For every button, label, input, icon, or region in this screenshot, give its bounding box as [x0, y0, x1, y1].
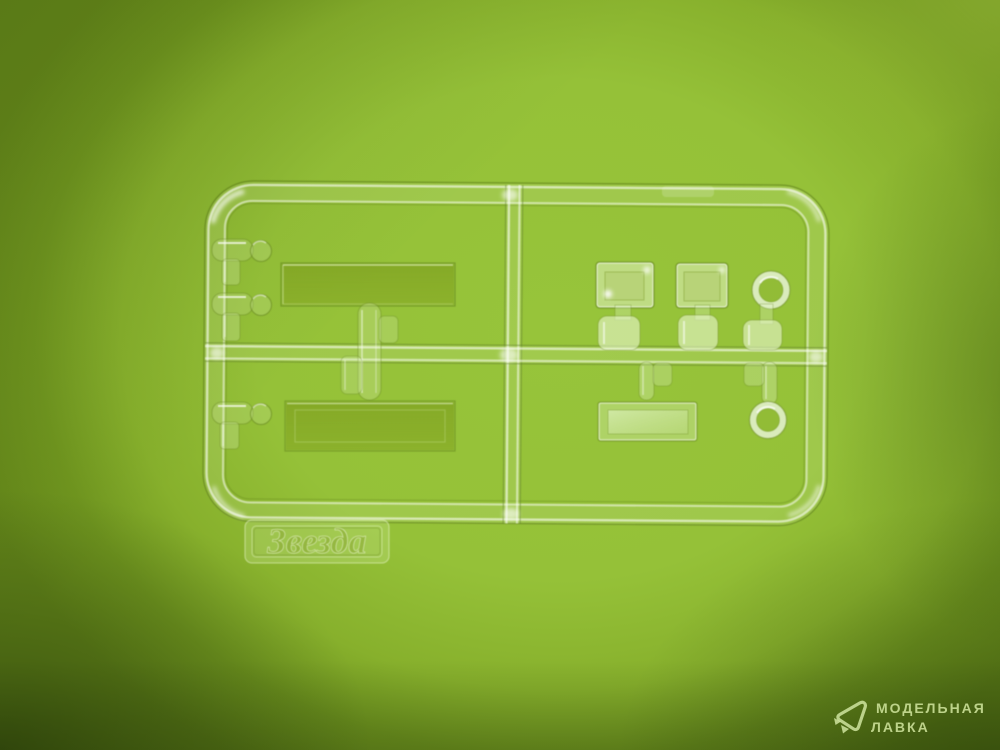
svg-text:Звезда: Звезда — [267, 521, 367, 561]
